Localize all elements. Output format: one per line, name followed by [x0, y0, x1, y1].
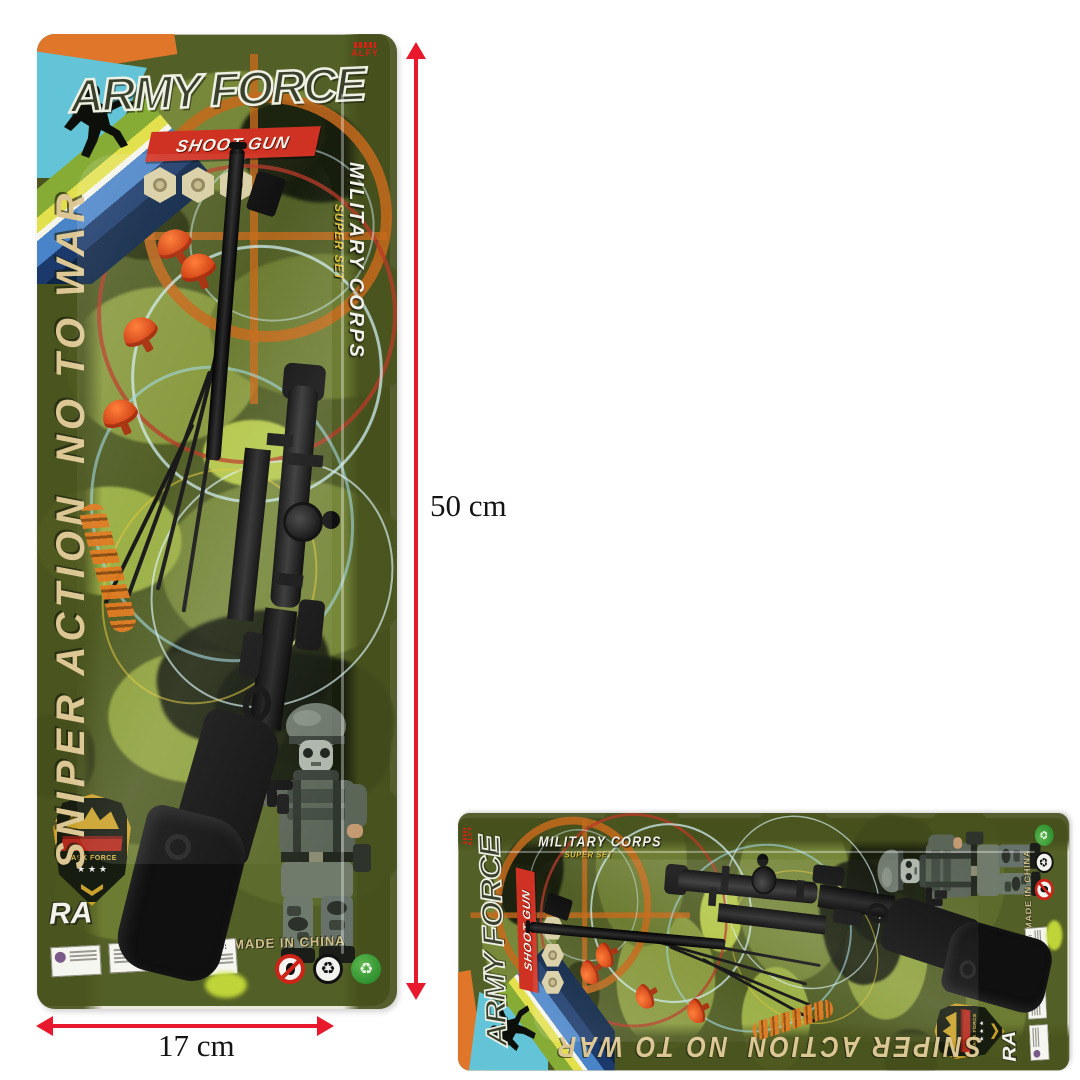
brand-glyph-marks — [354, 42, 376, 48]
width-dimension-label: 17 cm — [158, 1030, 235, 1061]
blister-highlight — [1046, 920, 1062, 950]
hex-badge — [541, 971, 564, 994]
military-corps-label: MILITARY CORPS — [345, 162, 367, 422]
scope-mount — [267, 433, 294, 447]
safety-icons-row: ♻ ♻ — [1035, 824, 1054, 900]
fine-print-line — [70, 954, 97, 957]
scope-eyepiece — [294, 599, 325, 651]
fine-print-line — [69, 950, 96, 953]
hex-emblem — [548, 977, 557, 987]
rotated-package-stage: ALFY ARMY FORCE SHOOT GUN NO TO WAR SNIP… — [458, 813, 1069, 1070]
fine-print-line — [1037, 1028, 1039, 1047]
scope-eyepiece — [812, 864, 845, 886]
arrow-line — [414, 54, 418, 988]
safety-icons-row: ♻ ♻ — [275, 954, 381, 984]
scope-mount — [708, 887, 717, 906]
scope-side-knob — [322, 511, 340, 529]
rifle-stock-detail — [960, 960, 976, 979]
made-in-label: MADE IN CHINA — [1022, 850, 1033, 931]
age-warning-icon — [1035, 879, 1054, 900]
scope-turret-knob — [751, 866, 776, 895]
blister-card: ALFY ARMY FORCE SHOOT GUN NO TO WAR SNIP… — [37, 34, 397, 1009]
rifle-stock-detail — [165, 834, 191, 860]
recycle-icon: ♻ — [1035, 852, 1054, 873]
height-dimension-label: 50 cm — [430, 490, 507, 521]
side-text-no-to-war: NO TO WAR — [51, 174, 91, 464]
toy-package-horizontal: ALFY ARMY FORCE SHOOT GUN NO TO WAR SNIP… — [458, 813, 1069, 1070]
info-label-box — [50, 945, 102, 978]
product-photo-canvas: ALFY ARMY FORCE SHOOT GUN NO TO WAR SNIP… — [0, 0, 1080, 1080]
hex-badge — [144, 167, 176, 203]
partial-word: RA — [1000, 1030, 1020, 1062]
green-dot-icon: ♻ — [351, 954, 381, 984]
arrow-right-icon — [317, 1016, 334, 1036]
info-label-box — [1029, 1024, 1049, 1061]
side-text-right: MILITARY CORPS SUPER SET — [538, 834, 701, 859]
made-in-label: MADE IN CHINA — [233, 934, 346, 951]
hex-badge — [541, 944, 564, 967]
brand-glyph-marks — [463, 828, 467, 844]
hex-emblem — [548, 950, 557, 960]
age-warning-icon — [275, 954, 305, 984]
blister-edge-highlight — [496, 851, 1035, 853]
toy-package-rotated: ALFY ARMY FORCE SHOOT GUN NO TO WAR SNIP… — [458, 813, 1069, 1070]
scope-turret-knob — [283, 502, 323, 542]
height-dimension-arrow — [406, 42, 426, 1000]
maker-logo — [1033, 1050, 1040, 1058]
blister-edge-highlight — [341, 94, 344, 954]
toy-package-vertical: ALFY ARMY FORCE SHOOT GUN NO TO WAR SNIP… — [37, 34, 397, 1009]
green-dot-icon: ♻ — [1035, 824, 1054, 845]
arrow-down-icon — [406, 983, 426, 1000]
military-corps-label: MILITARY CORPS — [538, 834, 701, 850]
maker-logo — [55, 952, 67, 964]
partial-word: RA — [48, 898, 92, 929]
fine-print-line — [70, 958, 97, 961]
side-text-no-to-war: NO TO WAR — [546, 1032, 728, 1061]
hex-emblem — [153, 178, 167, 192]
blister-highlight — [205, 972, 247, 998]
scope-side-knob — [757, 854, 768, 867]
side-text-right: MILITARY CORPS SUPER SET — [332, 162, 367, 422]
hex-badge — [182, 167, 214, 203]
recycle-icon: ♻ — [313, 954, 343, 984]
hex-emblem — [191, 178, 205, 192]
blister-card: ALFY ARMY FORCE SHOOT GUN NO TO WAR SNIP… — [458, 813, 1069, 1070]
